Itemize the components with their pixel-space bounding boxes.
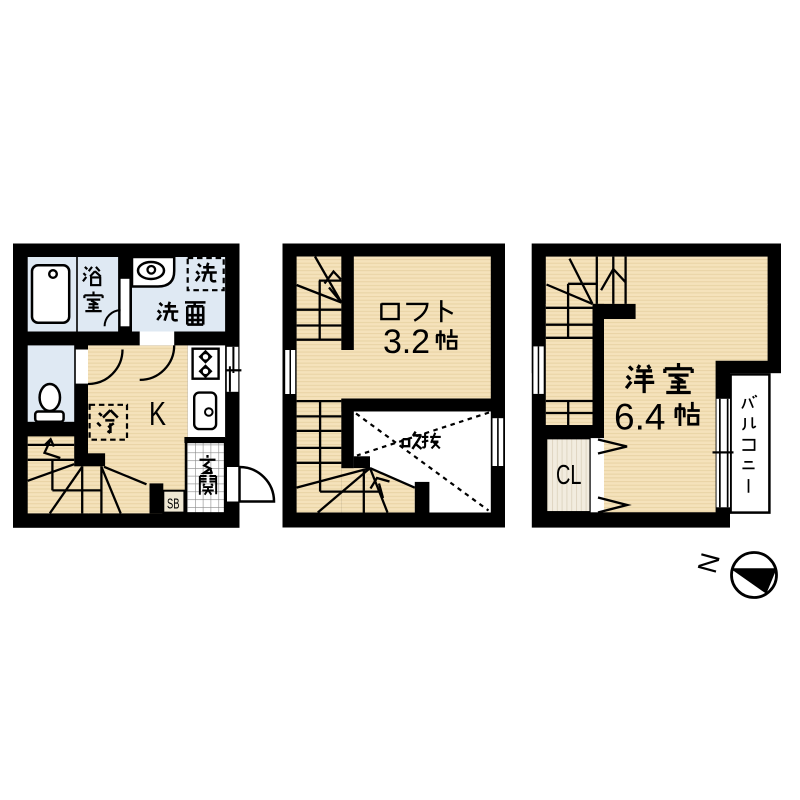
svg-text:CL: CL bbox=[556, 459, 582, 490]
svg-text:K: K bbox=[149, 395, 166, 432]
svg-text:SB: SB bbox=[167, 496, 180, 512]
svg-text:6.4: 6.4 bbox=[614, 397, 665, 438]
svg-text:3.2: 3.2 bbox=[383, 323, 430, 361]
